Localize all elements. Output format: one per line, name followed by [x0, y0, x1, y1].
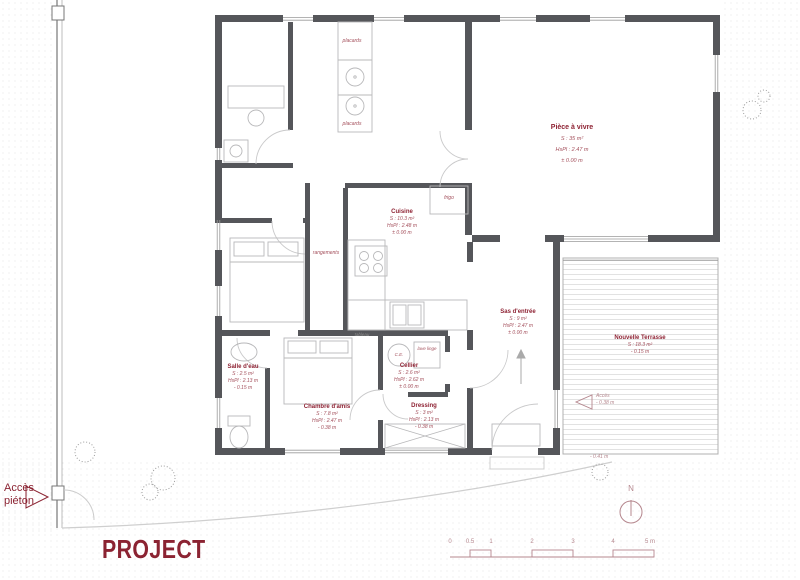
label-water-heater: C.E. [389, 352, 409, 357]
scale-tick-2: 2 [530, 539, 533, 545]
label-frigo: frigo [434, 195, 464, 201]
bed-master [230, 238, 304, 322]
label-rangements: rangements [309, 250, 343, 256]
label-lave-linge: lave linge [417, 346, 437, 352]
room-label-cellier: Cellier S : 2.6 m² HsPl : 2.62 m ± 0.00 … [364, 362, 454, 391]
project-title: PROJECT [102, 534, 206, 565]
entry-arrow-icon [517, 350, 525, 384]
floorplan-drawing [0, 0, 800, 580]
kitchen-sink [390, 302, 424, 328]
scale-tick-3: 3 [571, 539, 574, 545]
label-terrace-edge-level: - 0.41 m [590, 454, 608, 460]
toilet-icon [228, 416, 250, 426]
chair-icon [248, 110, 264, 126]
desk [228, 86, 284, 108]
entry-step [490, 457, 544, 469]
label-tableau: tableau [348, 332, 376, 337]
scale-tick-1: 1 [489, 539, 492, 545]
scale-bar-shape [450, 550, 654, 557]
room-label-salle-eau: Salle d'eau S : 2.5 m² HsPl : 2.13 m - 0… [198, 363, 288, 392]
bed-guest [284, 338, 352, 404]
cooktop-icon [355, 246, 387, 276]
label-terrace-access: Accès - 0.38 m [596, 393, 614, 407]
north-arrow-icon [620, 500, 642, 523]
room-label-chambre-amis: Chambre d'amis S : 7.8 m² HsPl : 2.47 m … [282, 403, 372, 432]
washbasin-icon [231, 343, 257, 361]
boundary-fence [52, 0, 94, 528]
label-acces-pieton: Accès piéton [4, 482, 34, 508]
floorplan-page: Pièce à vivre S : 35 m² HsPl : 2.47 m ± … [0, 0, 800, 580]
kitchen-counter [348, 240, 385, 330]
room-label-piece-a-vivre: Pièce à vivre S : 35 m² HsPl : 2.47 m ± … [527, 122, 617, 167]
terrace-deck [563, 258, 718, 454]
washbasin [224, 140, 248, 162]
scale-tick-5m: 5 m [645, 539, 655, 545]
scale-tick-0: 0 [448, 539, 451, 545]
bench [492, 424, 540, 446]
label-placards-bottom: placards [334, 121, 370, 127]
path-edge-curve [62, 462, 612, 528]
room-label-sas: Sas d'entrée S : 9 m² HsPl : 2.47 m ± 0.… [473, 308, 563, 337]
room-label-dressing: Dressing S : 3 m² HsPl : 2.13 m - 0.38 m [379, 402, 469, 431]
room-label-terrasse: Nouvelle Terrasse S : 18.3 m² - 0.15 m [595, 334, 685, 356]
north-label: N [628, 484, 634, 493]
room-label-cuisine: Cuisine S : 10.3 m² HsPl : 2.48 m ± 0.00… [357, 208, 447, 237]
scale-tick-05: 0.5 [466, 539, 474, 545]
label-placards-top: placards [334, 38, 370, 44]
scale-tick-4: 4 [611, 539, 614, 545]
